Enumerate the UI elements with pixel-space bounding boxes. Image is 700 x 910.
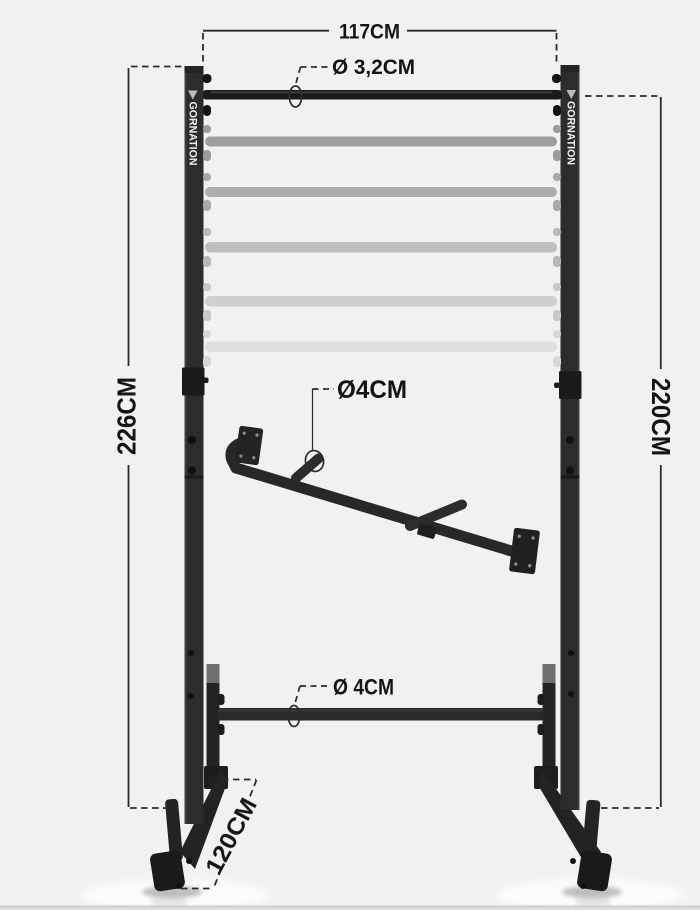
svg-text:226CM: 226CM bbox=[112, 377, 142, 455]
svg-text:GORNATION: GORNATION bbox=[187, 102, 199, 166]
svg-text:Ø4CM: Ø4CM bbox=[337, 376, 407, 404]
svg-text:220CM: 220CM bbox=[646, 378, 676, 456]
svg-text:GORNATION: GORNATION bbox=[565, 101, 577, 165]
svg-text:Ø 3,2CM: Ø 3,2CM bbox=[332, 55, 415, 79]
svg-text:117CM: 117CM bbox=[339, 20, 400, 44]
svg-text:Ø 4CM: Ø 4CM bbox=[333, 675, 394, 700]
